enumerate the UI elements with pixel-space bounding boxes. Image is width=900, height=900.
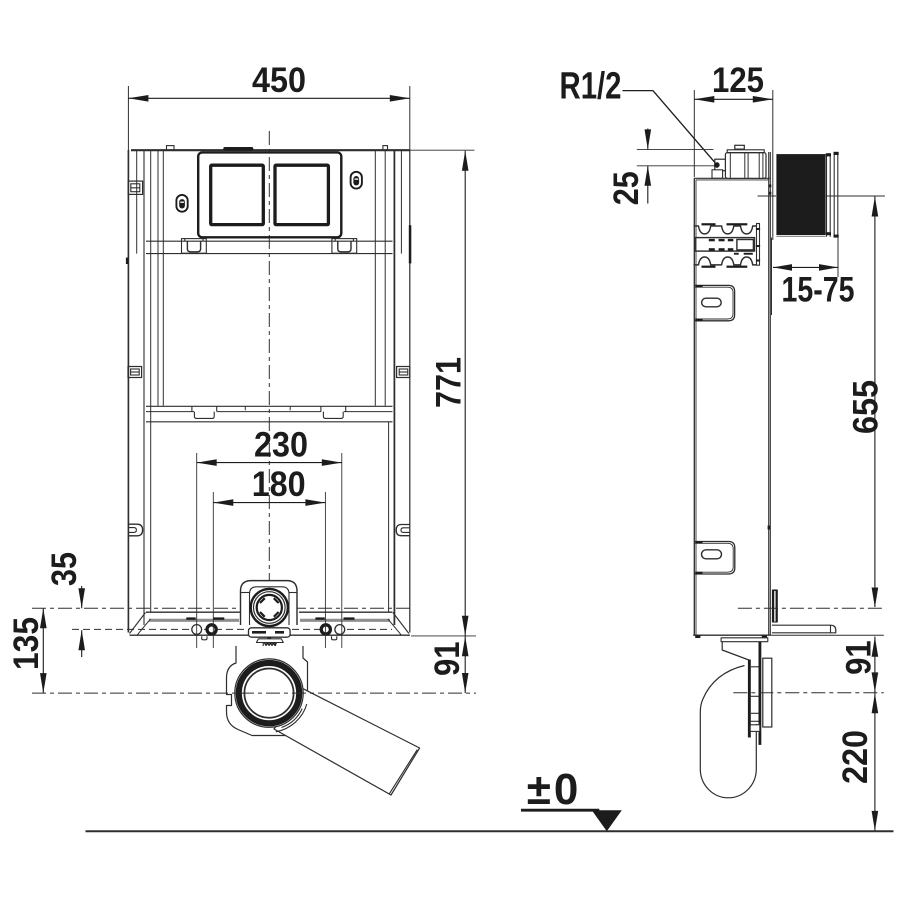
svg-text:125: 125	[712, 61, 764, 100]
svg-text:±0: ±0	[527, 765, 582, 814]
svg-text:230: 230	[254, 426, 308, 465]
svg-text:655: 655	[846, 380, 885, 434]
svg-text:25: 25	[607, 171, 646, 205]
svg-text:15-75: 15-75	[782, 271, 855, 310]
svg-text:135: 135	[7, 617, 46, 670]
svg-text:91: 91	[839, 640, 878, 675]
svg-text:450: 450	[252, 61, 306, 100]
svg-text:R1/2: R1/2	[560, 66, 622, 108]
svg-text:220: 220	[836, 730, 875, 784]
svg-text:35: 35	[45, 552, 84, 586]
svg-text:771: 771	[429, 357, 468, 408]
svg-text:91: 91	[428, 641, 467, 676]
svg-text:180: 180	[252, 465, 306, 504]
